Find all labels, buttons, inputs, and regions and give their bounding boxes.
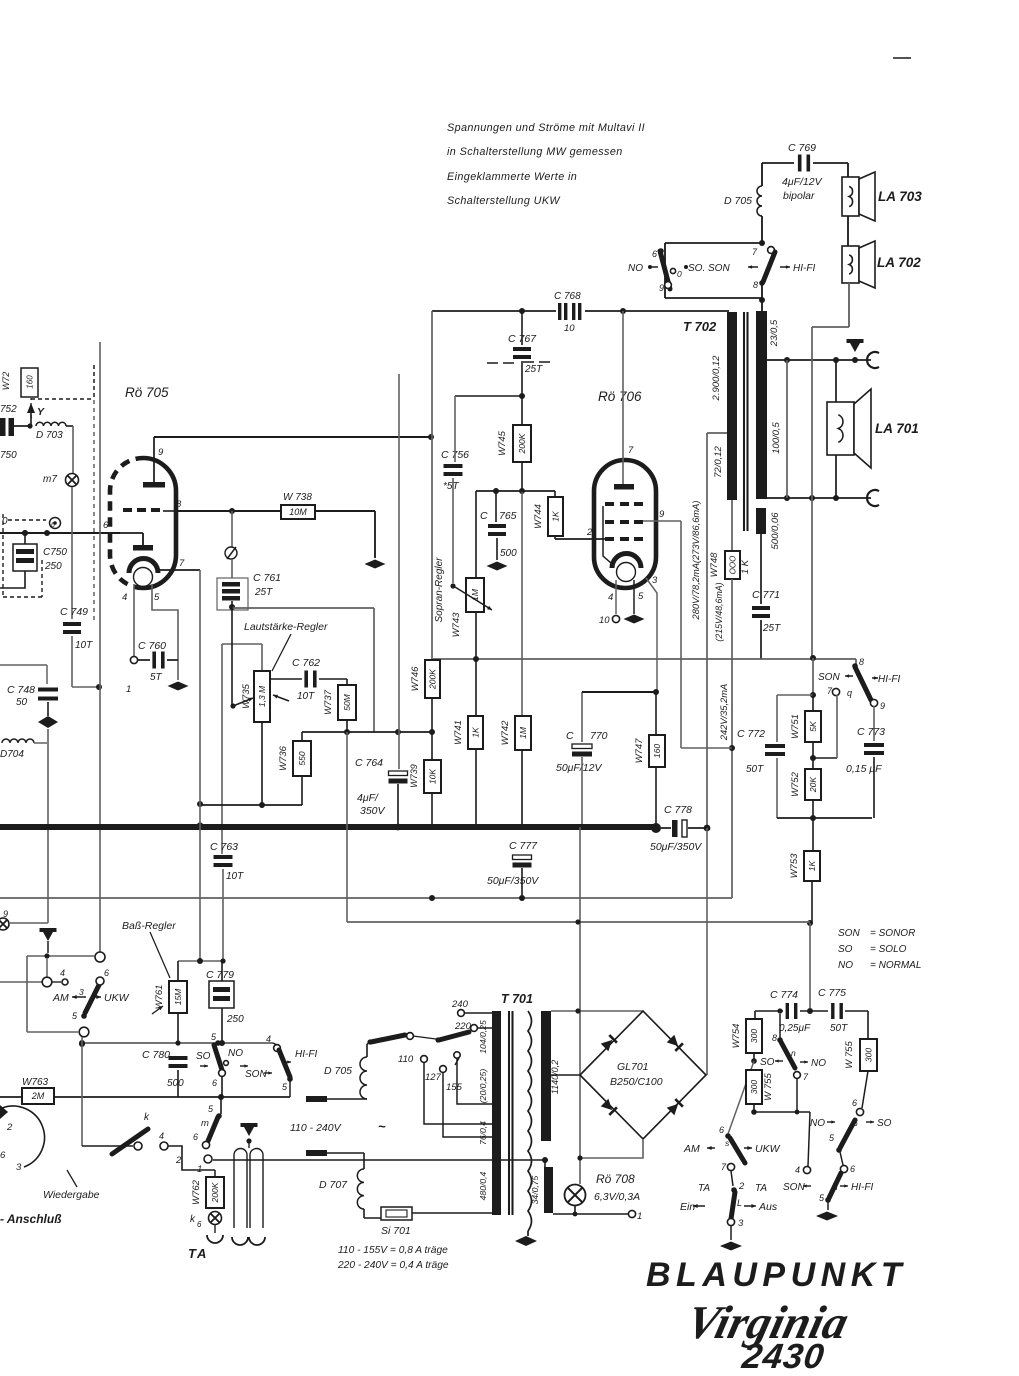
svg-text:C 775: C 775 <box>818 987 846 999</box>
svg-text:104/0,25: 104/0,25 <box>478 1020 488 1054</box>
svg-text:Y: Y <box>37 406 45 418</box>
svg-text:SO: SO <box>196 1051 211 1062</box>
svg-text:W753: W753 <box>789 853 800 879</box>
svg-text:9: 9 <box>659 283 664 293</box>
svg-text:200K: 200K <box>517 433 527 454</box>
svg-text:SON: SON <box>818 672 840 683</box>
svg-text:C750: C750 <box>43 547 67 558</box>
svg-text:TA: TA <box>188 1246 208 1261</box>
svg-text:20K: 20K <box>808 777 818 793</box>
svg-text:100/0,5: 100/0,5 <box>771 421 782 453</box>
svg-text:Schalterstellung UKW: Schalterstellung UKW <box>447 195 561 207</box>
svg-text:9: 9 <box>880 701 885 711</box>
svg-text:D 705: D 705 <box>324 1065 352 1077</box>
svg-text:C 762: C 762 <box>292 657 320 669</box>
svg-text:1: 1 <box>197 1164 202 1175</box>
svg-text:~: ~ <box>378 1119 386 1134</box>
svg-text:SO: SO <box>760 1057 775 1068</box>
svg-text:10: 10 <box>564 323 575 334</box>
svg-text:GL701: GL701 <box>617 1061 649 1073</box>
svg-text:W735: W735 <box>241 683 252 709</box>
svg-text:W741: W741 <box>453 720 464 745</box>
svg-text:5K: 5K <box>808 721 818 732</box>
svg-text:250: 250 <box>44 561 62 572</box>
svg-text:W 755: W 755 <box>763 1073 774 1101</box>
svg-text:10T: 10T <box>226 871 244 882</box>
svg-text:6: 6 <box>103 520 109 531</box>
svg-text:W763: W763 <box>22 1077 49 1088</box>
svg-text:SON: SON <box>783 1182 805 1193</box>
svg-text:m: m <box>201 1118 209 1129</box>
svg-text:127: 127 <box>425 1072 442 1083</box>
svg-text:242V/35,2mA: 242V/35,2mA <box>719 684 729 741</box>
svg-text:C 761: C 761 <box>253 572 281 584</box>
svg-text:3: 3 <box>652 575 658 586</box>
svg-text:D 707: D 707 <box>319 1179 348 1191</box>
svg-text:W745: W745 <box>497 430 508 456</box>
svg-text:C 763: C 763 <box>210 841 238 853</box>
svg-text:5: 5 <box>638 591 644 602</box>
svg-text:2: 2 <box>6 1122 13 1133</box>
svg-text:HI-FI: HI-FI <box>851 1182 873 1193</box>
svg-text:6: 6 <box>193 1132 198 1142</box>
svg-text:m7: m7 <box>43 474 57 485</box>
svg-text:280V/78,2mA(273V/86,6mA): 280V/78,2mA(273V/86,6mA) <box>691 501 701 621</box>
svg-text:Si 701: Si 701 <box>381 1225 411 1237</box>
svg-text:8: 8 <box>176 499 182 510</box>
svg-text:480/0,4: 480/0,4 <box>478 1171 488 1200</box>
svg-text:8: 8 <box>753 280 758 290</box>
svg-text:50T: 50T <box>830 1023 848 1034</box>
svg-text:W746: W746 <box>410 666 421 692</box>
svg-text:1K: 1K <box>551 511 561 522</box>
svg-text:3: 3 <box>738 1218 744 1229</box>
svg-text:0,15 μF: 0,15 μF <box>846 763 882 775</box>
svg-text:250: 250 <box>226 1014 244 1025</box>
svg-text:C 769: C 769 <box>788 142 816 154</box>
svg-text:2M: 2M <box>31 1091 45 1101</box>
svg-text:25T: 25T <box>762 623 781 634</box>
svg-text:10T: 10T <box>297 691 315 702</box>
svg-text:NO: NO <box>228 1048 243 1059</box>
svg-text:D 703: D 703 <box>36 430 63 441</box>
svg-text:HI-FI: HI-FI <box>793 263 815 274</box>
svg-text:Baß-Regler: Baß-Regler <box>122 920 176 932</box>
svg-text:200K: 200K <box>210 1182 220 1203</box>
svg-text:6: 6 <box>652 249 657 259</box>
svg-text:6: 6 <box>850 1164 855 1174</box>
svg-text:TA: TA <box>698 1183 710 1194</box>
svg-text:5T: 5T <box>150 672 163 683</box>
svg-text:10T: 10T <box>75 640 93 651</box>
svg-text:10M: 10M <box>289 507 307 517</box>
svg-text:6: 6 <box>0 1150 6 1161</box>
svg-text:in Schalterstellung MW gemesse: in Schalterstellung MW gemessen <box>447 146 623 158</box>
svg-text:W748: W748 <box>709 552 720 578</box>
svg-text:C 773: C 773 <box>857 726 885 738</box>
svg-text:2.900/0,12: 2.900/0,12 <box>711 355 722 402</box>
svg-text:500/0,06: 500/0,06 <box>770 512 781 550</box>
svg-text:6: 6 <box>212 1078 217 1088</box>
svg-text:Aus: Aus <box>758 1201 778 1213</box>
svg-text:8: 8 <box>859 657 864 667</box>
svg-text:1K: 1K <box>807 860 817 871</box>
svg-text:C 768: C 768 <box>554 291 581 302</box>
svg-text:L: L <box>737 1198 742 1208</box>
svg-text:0,25μF: 0,25μF <box>779 1023 811 1034</box>
svg-text:AM: AM <box>52 992 69 1004</box>
svg-text:7: 7 <box>628 445 634 456</box>
svg-text:W761: W761 <box>154 985 165 1010</box>
svg-text:Sopran-Regler: Sopran-Regler <box>434 557 445 623</box>
svg-text:C 764: C 764 <box>355 757 383 769</box>
svg-text:752: 752 <box>0 404 17 415</box>
svg-text:220 - 240V = 0,4 A träge: 220 - 240V = 0,4 A träge <box>337 1260 449 1271</box>
svg-text:4: 4 <box>608 592 613 603</box>
svg-text:25T: 25T <box>254 587 273 598</box>
svg-text:300: 300 <box>749 1080 759 1094</box>
svg-text:3: 3 <box>79 987 84 997</box>
svg-text:- Anschluß: - Anschluß <box>0 1212 62 1226</box>
svg-text:W754: W754 <box>731 1024 742 1049</box>
svg-text:50μF/350V: 50μF/350V <box>650 841 702 853</box>
svg-text:1: 1 <box>126 684 131 695</box>
svg-text:1,3 M: 1,3 M <box>257 685 267 707</box>
svg-text:C 780: C 780 <box>142 1049 170 1061</box>
svg-text:NO: NO <box>811 1058 826 1069</box>
svg-text:1K: 1K <box>471 727 481 738</box>
svg-text:= SOLO: = SOLO <box>870 944 907 955</box>
svg-text:1 K: 1 K <box>740 559 751 574</box>
svg-text:4: 4 <box>795 1165 800 1175</box>
svg-text:4μF/12V: 4μF/12V <box>782 176 823 188</box>
svg-text:Eingeklammerte Werte in: Eingeklammerte Werte in <box>447 171 577 183</box>
svg-text:W737: W737 <box>323 689 334 715</box>
svg-text:W762: W762 <box>191 1179 202 1205</box>
svg-text:0: 0 <box>677 269 682 279</box>
svg-text:4: 4 <box>266 1034 271 1044</box>
svg-text:10: 10 <box>599 615 610 626</box>
svg-text:C 771: C 771 <box>752 589 780 601</box>
svg-text:W 755: W 755 <box>844 1041 855 1069</box>
svg-text:C 748: C 748 <box>7 684 35 696</box>
svg-text:W751: W751 <box>790 714 801 739</box>
svg-text:4: 4 <box>159 1131 164 1141</box>
svg-text:= SONOR: = SONOR <box>870 928 915 939</box>
svg-text:NO: NO <box>628 263 643 274</box>
svg-text:Rö 708: Rö 708 <box>596 1172 635 1186</box>
svg-text:BLAUPUNKT: BLAUPUNKT <box>646 1256 907 1294</box>
svg-text:200K: 200K <box>428 669 438 690</box>
svg-text:15M: 15M <box>173 988 183 1005</box>
svg-text:300: 300 <box>864 1048 874 1062</box>
svg-text:6: 6 <box>104 968 109 978</box>
svg-text:*5T: *5T <box>443 481 459 492</box>
svg-text:750: 750 <box>0 450 17 461</box>
svg-text:3: 3 <box>16 1162 22 1173</box>
svg-text:155: 155 <box>446 1082 463 1093</box>
svg-text:q: q <box>833 1180 838 1190</box>
svg-text:C 778: C 778 <box>664 804 692 816</box>
svg-text:C: C <box>480 510 488 522</box>
svg-text:Lautstärke-Regler: Lautstärke-Regler <box>244 621 328 633</box>
svg-text:C 749: C 749 <box>60 606 88 618</box>
svg-text:(20/0,25): (20/0,25) <box>478 1069 488 1104</box>
svg-text:W739: W739 <box>409 764 419 788</box>
svg-text:W743: W743 <box>451 612 462 638</box>
svg-text:6: 6 <box>853 1118 858 1128</box>
svg-text:LA 703: LA 703 <box>878 189 922 204</box>
svg-text:C 777: C 777 <box>509 840 538 852</box>
svg-text:1140/0,2: 1140/0,2 <box>550 1060 560 1094</box>
svg-text:2430: 2430 <box>739 1337 827 1371</box>
svg-text:UKW: UKW <box>755 1143 781 1155</box>
svg-text:W742: W742 <box>500 720 511 746</box>
svg-text:240: 240 <box>451 999 469 1010</box>
svg-text:6: 6 <box>197 1220 202 1229</box>
svg-text:(215V/48,6mA): (215V/48,6mA) <box>714 582 724 641</box>
svg-text:50M: 50M <box>342 693 352 710</box>
svg-text:W736: W736 <box>278 745 289 771</box>
svg-text:SO: SO <box>838 944 853 955</box>
svg-text:500: 500 <box>500 548 517 559</box>
svg-text:550: 550 <box>297 751 307 765</box>
svg-text:9: 9 <box>659 509 665 520</box>
svg-text:W72: W72 <box>1 372 11 391</box>
svg-text:6: 6 <box>719 1125 724 1135</box>
svg-text:160: 160 <box>652 744 662 758</box>
svg-text:2: 2 <box>738 1181 745 1192</box>
svg-text:T 702: T 702 <box>683 319 717 334</box>
svg-text:50T: 50T <box>746 764 764 775</box>
svg-text:SO. SON: SO. SON <box>688 263 730 274</box>
svg-text:4μF/: 4μF/ <box>357 792 379 804</box>
svg-text:W752: W752 <box>790 771 801 797</box>
svg-text:HI-FI: HI-FI <box>295 1049 317 1060</box>
svg-text:9: 9 <box>3 909 8 919</box>
svg-text:1: 1 <box>637 1211 642 1222</box>
svg-text:500: 500 <box>167 1078 184 1089</box>
svg-text:765: 765 <box>499 510 517 522</box>
svg-text:Rö 706: Rö 706 <box>598 389 642 404</box>
svg-text:= NORMAL: = NORMAL <box>870 960 921 971</box>
svg-text:34/0,75: 34/0,75 <box>530 1175 540 1204</box>
svg-text:9: 9 <box>158 447 164 458</box>
svg-text:25T: 25T <box>524 364 543 375</box>
svg-text:72/0,12: 72/0,12 <box>713 445 724 477</box>
svg-text:SON: SON <box>245 1069 267 1080</box>
svg-text:50μF/350V: 50μF/350V <box>487 875 539 887</box>
svg-text:NO: NO <box>810 1118 825 1129</box>
svg-text:Wiedergabe: Wiedergabe <box>43 1189 100 1201</box>
svg-text:110 - 240V: 110 - 240V <box>290 1122 342 1134</box>
svg-text:UKW: UKW <box>104 992 130 1004</box>
svg-text:AM: AM <box>683 1143 700 1155</box>
svg-text:6: 6 <box>852 1098 857 1108</box>
svg-text:110 - 155V = 0,8 A träge: 110 - 155V = 0,8 A träge <box>338 1245 448 1256</box>
svg-text:50μF/12V: 50μF/12V <box>556 762 602 774</box>
svg-text:4: 4 <box>122 592 127 603</box>
svg-text:23/0,5: 23/0,5 <box>769 319 780 347</box>
svg-text:C 779: C 779 <box>206 969 234 981</box>
svg-text:Ein: Ein <box>680 1201 695 1213</box>
svg-text:770: 770 <box>590 730 608 742</box>
svg-text:LA 702: LA 702 <box>877 255 921 270</box>
svg-text:W 738: W 738 <box>283 492 312 503</box>
svg-text:300: 300 <box>749 1029 759 1043</box>
svg-text:2: 2 <box>175 1155 182 1166</box>
svg-text:160: 160 <box>26 375 35 389</box>
svg-text:q: q <box>847 688 852 698</box>
svg-text:C: C <box>566 730 574 742</box>
svg-text:4: 4 <box>60 968 65 978</box>
svg-text:W744: W744 <box>533 504 544 529</box>
svg-text:C 774: C 774 <box>770 989 798 1001</box>
svg-text:TA: TA <box>755 1183 767 1194</box>
svg-text:7: 7 <box>179 558 185 569</box>
svg-text:D704: D704 <box>0 749 24 760</box>
svg-text:OOO: OOO <box>729 556 738 575</box>
svg-text:6,3V/0,3A: 6,3V/0,3A <box>594 1191 640 1203</box>
svg-text:T 701: T 701 <box>501 992 533 1006</box>
svg-text:bipolar: bipolar <box>783 190 815 202</box>
svg-text:350V: 350V <box>360 805 386 817</box>
svg-text:Rö 705: Rö 705 <box>125 385 169 400</box>
svg-text:5: 5 <box>154 592 160 603</box>
svg-text:C 760: C 760 <box>138 640 166 652</box>
svg-text:110: 110 <box>398 1054 414 1065</box>
svg-text:SO: SO <box>877 1118 892 1129</box>
svg-text:HI-FI: HI-FI <box>878 674 900 685</box>
svg-text:8: 8 <box>772 1033 777 1043</box>
svg-text:1M: 1M <box>518 726 528 739</box>
svg-text:50: 50 <box>16 697 28 708</box>
svg-text:Spannungen und Ströme mit Mult: Spannungen und Ströme mit Multavi II <box>447 122 645 134</box>
svg-text:B250/C100: B250/C100 <box>610 1076 663 1088</box>
svg-text:NO: NO <box>838 960 853 971</box>
svg-text:6: 6 <box>51 522 55 529</box>
svg-text:W747: W747 <box>634 738 645 764</box>
svg-text:D 705: D 705 <box>724 195 752 207</box>
svg-text:LA 701: LA 701 <box>875 421 919 436</box>
svg-text:n: n <box>791 1048 796 1058</box>
svg-text:C 772: C 772 <box>737 728 765 740</box>
svg-text:10K: 10K <box>428 769 438 784</box>
svg-text:SON: SON <box>838 928 860 939</box>
